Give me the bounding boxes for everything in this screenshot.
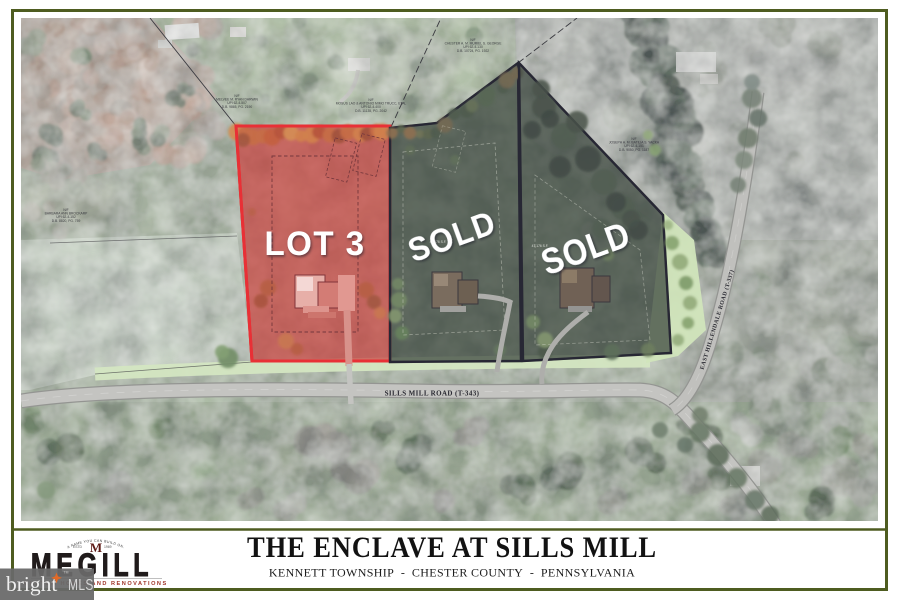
svg-text:D.B. 10724, PG. 1922: D.B. 10724, PG. 1922 xyxy=(457,49,489,53)
svg-text:SILLS MILL ROAD (T-343): SILLS MILL ROAD (T-343) xyxy=(385,390,480,398)
svg-text:TM: TM xyxy=(64,571,69,575)
svg-text:MLS: MLS xyxy=(68,575,94,593)
svg-text:45,176 S.F.: 45,176 S.F. xyxy=(430,240,447,244)
svg-text:LOT 3: LOT 3 xyxy=(264,226,365,264)
svg-text:D.B. 11135, PG. 2042: D.B. 11135, PG. 2042 xyxy=(355,109,387,113)
svg-text:D.B. 8820, PG. 759: D.B. 8820, PG. 759 xyxy=(52,219,81,223)
svg-text:bright: bright xyxy=(6,572,57,596)
svg-text:47,176 S.F.: 47,176 S.F. xyxy=(532,244,549,248)
svg-text:D.B. 9865, PG. 2190: D.B. 9865, PG. 2190 xyxy=(222,105,253,109)
svg-text:KENNETT TOWNSHIP - CHESTER C: KENNETT TOWNSHIP - CHESTER COUNTY - PENN… xyxy=(269,566,635,580)
svg-text:THE ENCLAVE AT SILLS MILL: THE ENCLAVE AT SILLS MILL xyxy=(247,532,657,565)
svg-text:D.B. 9050, PG. 1187: D.B. 9050, PG. 1187 xyxy=(619,148,649,152)
